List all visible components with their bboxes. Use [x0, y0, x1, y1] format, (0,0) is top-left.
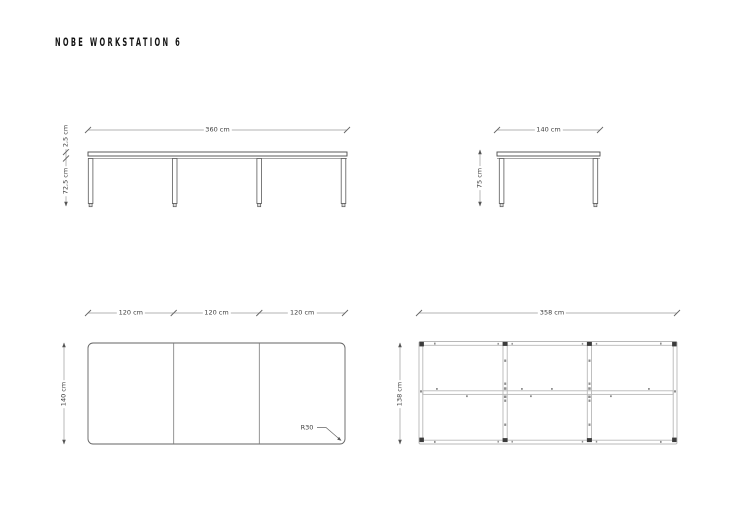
table-front	[88, 152, 347, 207]
side-height-dimension-label: 75 cm	[476, 166, 483, 190]
tabletop-side	[497, 152, 600, 156]
front-dimension-arrow-down	[64, 202, 68, 207]
drawing-sheet: NOBE WORKSTATION 6	[0, 0, 750, 530]
plan-depth-dimension-label: 140 cm	[60, 379, 67, 407]
frame-inner-rail	[423, 345, 673, 440]
front-dimension-lines	[66, 125, 347, 206]
leg-feet-front	[89, 204, 345, 207]
front-elevation-view	[63, 125, 350, 207]
front-top-thickness-dimension-label: 2,5 cm	[62, 123, 69, 149]
table-side	[497, 152, 600, 207]
side-width-dimension-label: 140 cm	[534, 126, 562, 133]
frame-plan-view	[398, 310, 680, 445]
table-legs-front	[88, 159, 346, 204]
plan-dimension-arrow-down	[62, 440, 66, 445]
leg-feet-side	[500, 204, 597, 207]
side-dimension-lines	[480, 130, 600, 206]
frame-depth-dimension-label: 138 cm	[396, 379, 403, 407]
side-dimension-arrow-up	[478, 150, 482, 155]
side-elevation-view	[478, 127, 603, 207]
frame-dimension-arrow-up	[398, 343, 402, 348]
frame-outer-rail	[419, 342, 677, 445]
frame-width-dimension-label: 358 cm	[538, 309, 566, 316]
technical-drawing-linework	[0, 0, 750, 530]
frame-center-rail	[423, 391, 673, 395]
plan-segment-1-dimension-label: 120 cm	[117, 309, 145, 316]
plan-segment-2-dimension-label: 120 cm	[202, 309, 230, 316]
front-leg-height-dimension-label: 72,5 cm	[62, 166, 69, 196]
frame-corner-brackets	[419, 342, 676, 442]
side-dimension-arrow-down	[478, 202, 482, 207]
frame-dimension-arrow-down	[398, 440, 402, 445]
corner-radius-label: R30	[299, 424, 316, 431]
front-width-dimension-label: 360 cm	[203, 126, 231, 133]
frame-rails	[419, 342, 677, 445]
tabletop-front	[88, 152, 347, 156]
frame-screws	[420, 343, 676, 443]
plan-segment-3-dimension-label: 120 cm	[288, 309, 316, 316]
plan-dimension-arrow-up	[62, 343, 66, 348]
table-legs-side	[499, 159, 597, 204]
frame-dimension-lines	[400, 313, 677, 444]
